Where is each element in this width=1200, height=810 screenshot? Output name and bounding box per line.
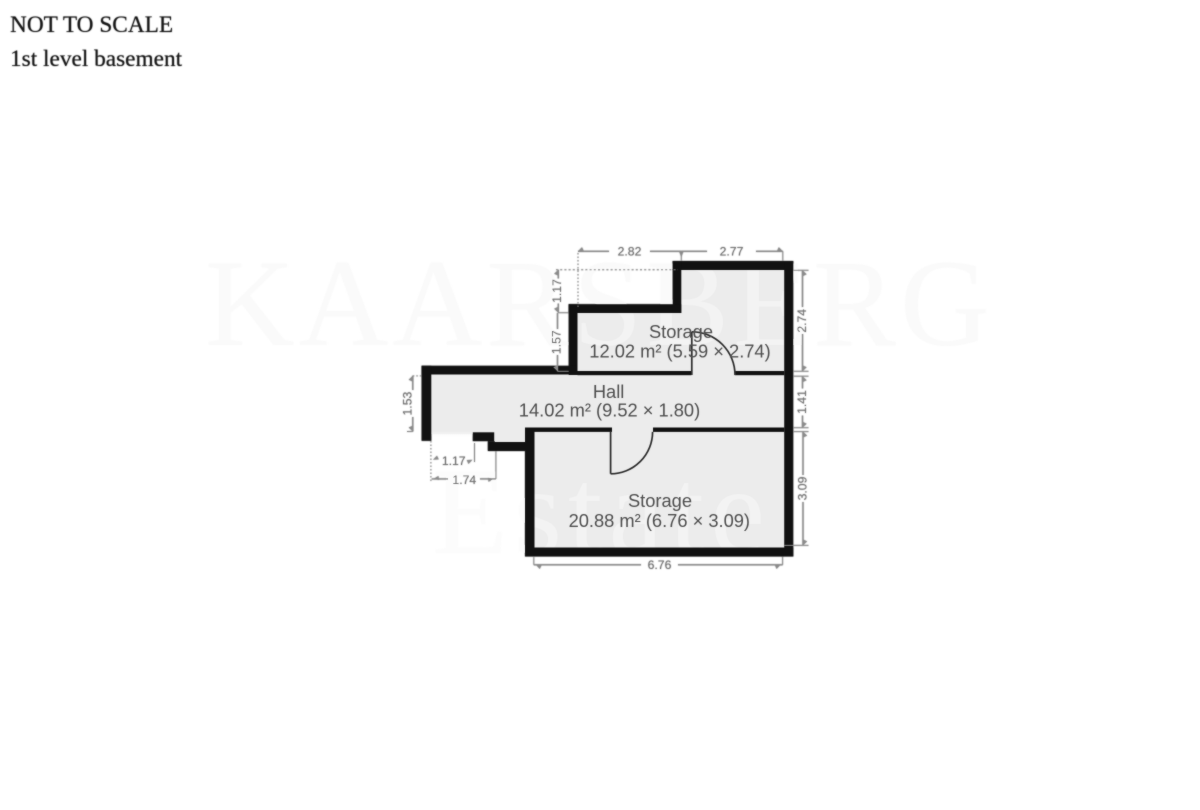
svg-text:2.77: 2.77: [720, 244, 744, 258]
svg-text:1st level basement: 1st level basement: [10, 46, 183, 72]
svg-text:Storage: Storage: [628, 490, 692, 511]
svg-text:12.02 m² (5.59 × 2.74): 12.02 m² (5.59 × 2.74): [589, 341, 770, 362]
svg-text:6.76: 6.76: [648, 558, 672, 572]
svg-text:2.82: 2.82: [618, 244, 642, 258]
svg-text:1.74: 1.74: [452, 473, 476, 487]
svg-text:20.88 m² (6.76 × 3.09): 20.88 m² (6.76 × 3.09): [569, 510, 750, 531]
svg-text:14.02 m² (9.52 × 1.80): 14.02 m² (9.52 × 1.80): [519, 400, 700, 421]
svg-text:1.17: 1.17: [550, 279, 564, 303]
svg-text:1.41: 1.41: [795, 390, 809, 414]
svg-text:1.17: 1.17: [442, 454, 466, 468]
svg-text:1.57: 1.57: [550, 330, 564, 354]
svg-text:3.09: 3.09: [795, 476, 809, 500]
svg-text:NOT TO SCALE: NOT TO SCALE: [10, 12, 173, 38]
svg-text:2.74: 2.74: [795, 309, 809, 333]
svg-text:1.53: 1.53: [401, 392, 415, 416]
svg-text:Storage: Storage: [649, 321, 713, 342]
